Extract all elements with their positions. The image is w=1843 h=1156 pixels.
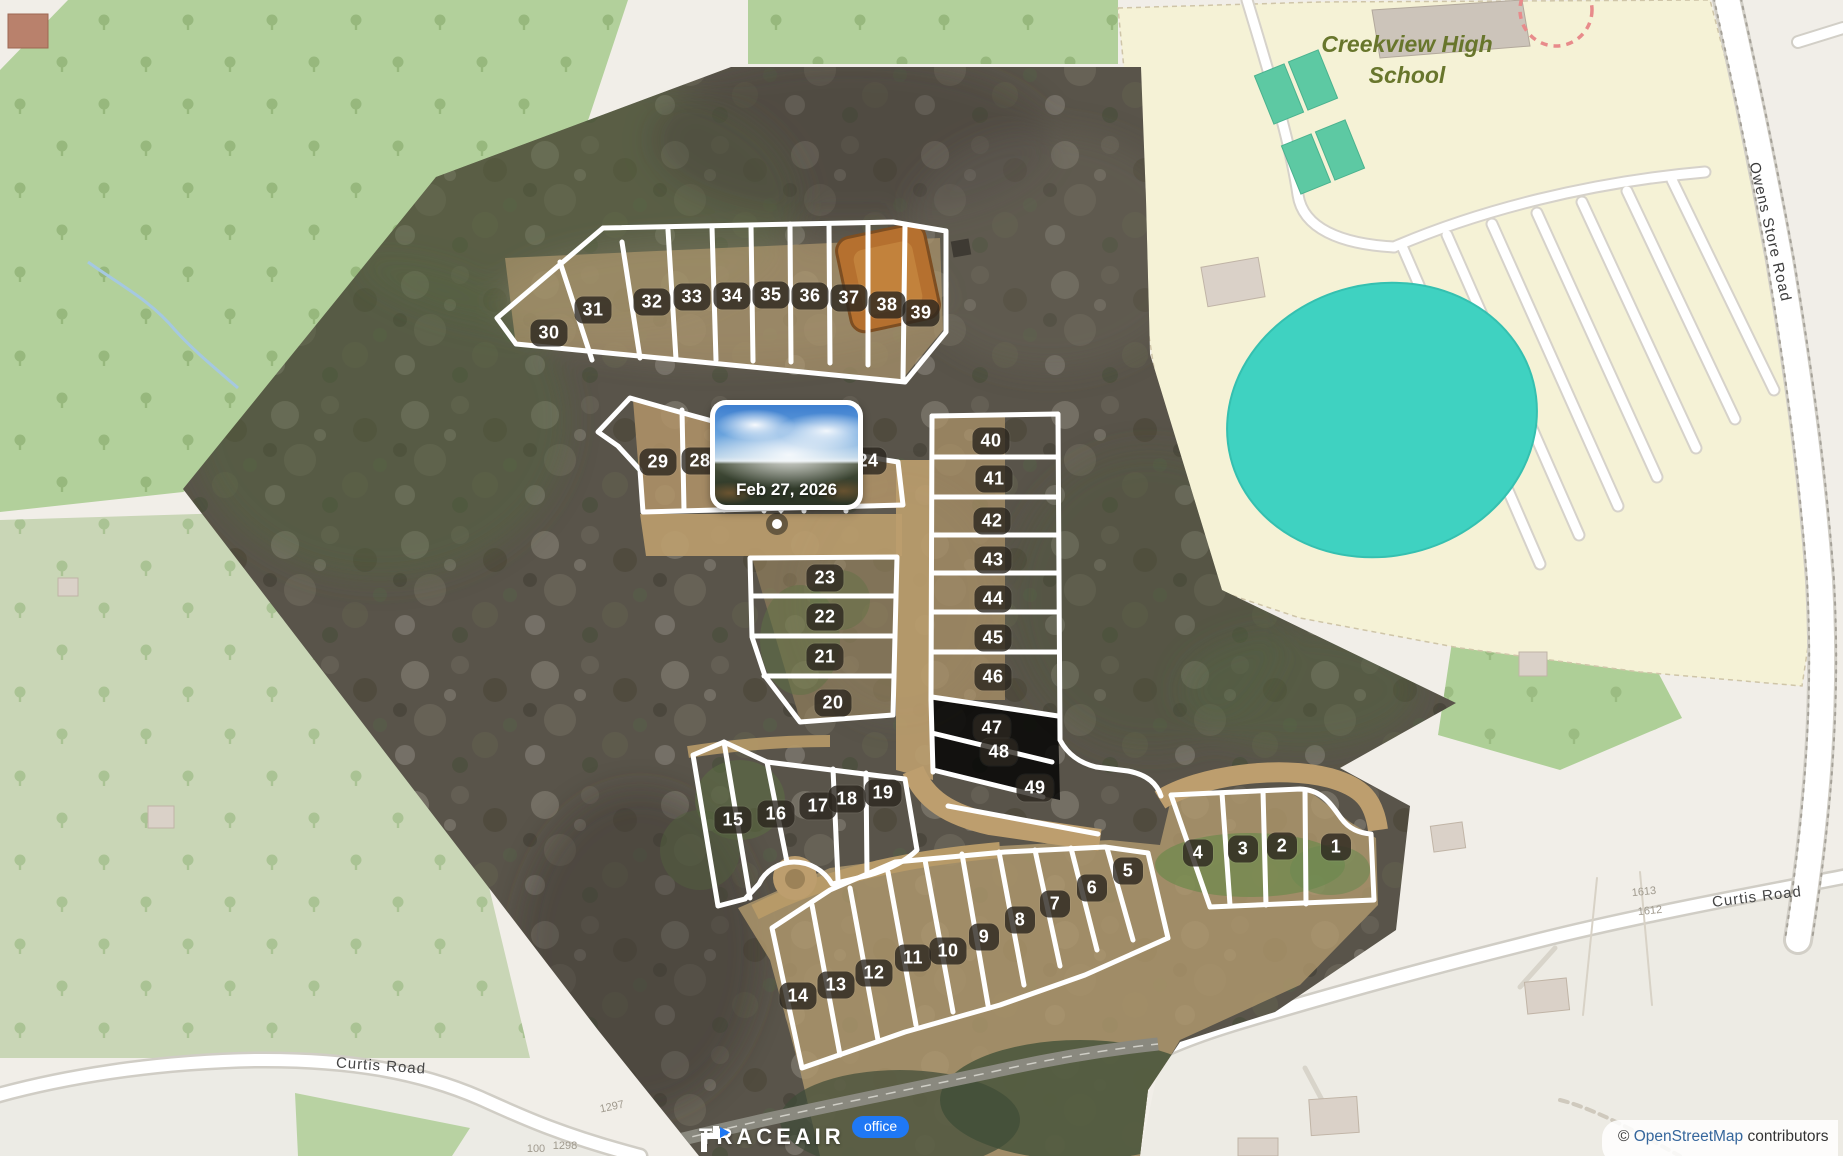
lot-label-40[interactable]: 40 (972, 428, 1009, 455)
traceair-logo-glyph (699, 1124, 731, 1154)
lot-label-15[interactable]: 15 (714, 807, 751, 834)
snapshot-thumbnail[interactable]: Feb 27, 2026 (715, 405, 858, 505)
snapshot-date: Feb 27, 2026 (715, 480, 858, 500)
house-number-100: 100 (527, 1143, 545, 1155)
lot-label-32[interactable]: 32 (633, 289, 670, 316)
photo-location-marker[interactable] (766, 513, 788, 535)
lot-label-23[interactable]: 23 (806, 565, 843, 592)
lot-label-43[interactable]: 43 (974, 547, 1011, 574)
house-number-1298: 1298 (553, 1140, 577, 1152)
lot-label-20[interactable]: 20 (814, 690, 851, 717)
school-campus (1118, 0, 1815, 686)
lot-label-14[interactable]: 14 (779, 983, 816, 1010)
lot-label-1[interactable]: 1 (1321, 834, 1351, 861)
lot-label-46[interactable]: 46 (974, 664, 1011, 691)
lot-label-8[interactable]: 8 (1005, 907, 1035, 934)
lot-label-34[interactable]: 34 (713, 283, 750, 310)
map-attribution: © OpenStreetMap contributors (1602, 1120, 1838, 1156)
lot-label-13[interactable]: 13 (817, 972, 854, 999)
office-badge: office (852, 1116, 909, 1138)
lot-label-33[interactable]: 33 (673, 284, 710, 311)
base-map-svg (0, 0, 1843, 1156)
house-number-1612: 1612 (1637, 904, 1663, 918)
lot-label-35[interactable]: 35 (752, 282, 789, 309)
snapshot-popup[interactable]: Feb 27, 2026 (710, 400, 863, 510)
lot-label-41[interactable]: 41 (975, 466, 1012, 493)
lot-label-19[interactable]: 19 (864, 780, 901, 807)
lot-label-11[interactable]: 11 (895, 945, 931, 972)
lot-label-31[interactable]: 31 (574, 297, 611, 324)
attribution-suffix: contributors (1743, 1128, 1828, 1145)
traceair-map-view[interactable]: Creekview High School Owens Store Road C… (0, 0, 1843, 1156)
lot-label-6[interactable]: 6 (1077, 875, 1107, 902)
lot-label-12[interactable]: 12 (855, 960, 892, 987)
house-number-1613: 1613 (1631, 885, 1657, 899)
lot-label-49[interactable]: 49 (1016, 775, 1053, 802)
lot-label-5[interactable]: 5 (1113, 858, 1143, 885)
lot-label-30[interactable]: 30 (530, 320, 567, 347)
lot-label-2[interactable]: 2 (1267, 833, 1297, 860)
lot-label-10[interactable]: 10 (929, 938, 966, 965)
lot-label-4[interactable]: 4 (1183, 840, 1213, 867)
traceair-logo: TRACEAIR (699, 1124, 845, 1150)
lot-label-18[interactable]: 18 (828, 786, 865, 813)
openstreetmap-link[interactable]: OpenStreetMap (1634, 1128, 1743, 1145)
lot-label-29[interactable]: 29 (639, 449, 676, 476)
lot-label-21[interactable]: 21 (806, 644, 843, 671)
lot-label-48[interactable]: 48 (980, 739, 1017, 766)
lot-label-37[interactable]: 37 (830, 285, 867, 312)
lot-label-45[interactable]: 45 (974, 625, 1011, 652)
lot-label-47[interactable]: 47 (973, 715, 1010, 742)
lot-label-44[interactable]: 44 (974, 586, 1011, 613)
lot-label-39[interactable]: 39 (902, 300, 939, 327)
lot-label-7[interactable]: 7 (1040, 891, 1070, 918)
lot-label-16[interactable]: 16 (757, 801, 794, 828)
lot-label-22[interactable]: 22 (806, 604, 843, 631)
lot-label-9[interactable]: 9 (969, 924, 999, 951)
lot-label-36[interactable]: 36 (791, 283, 828, 310)
lot-label-3[interactable]: 3 (1228, 836, 1258, 863)
lot-label-42[interactable]: 42 (973, 508, 1010, 535)
lot-label-38[interactable]: 38 (868, 292, 905, 319)
attribution-copyright: © (1618, 1128, 1634, 1145)
